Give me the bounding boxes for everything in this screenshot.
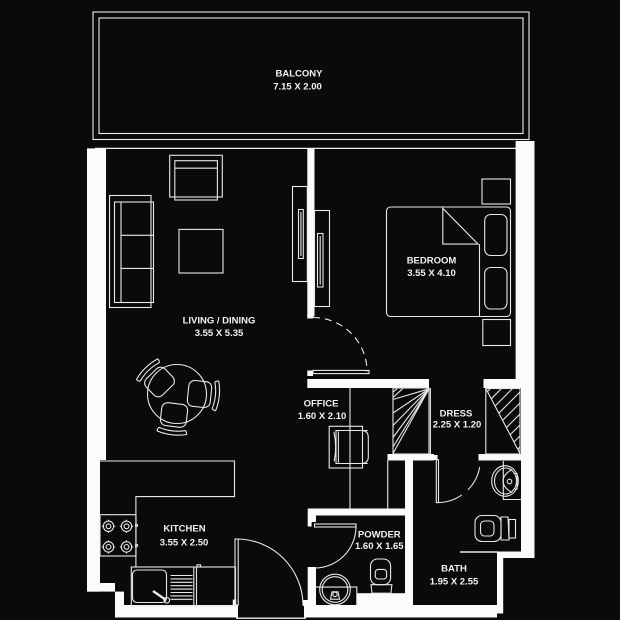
svg-text:3.55 X 2.50: 3.55 X 2.50: [160, 538, 209, 549]
svg-text:1.60 X 2.10: 1.60 X 2.10: [298, 411, 347, 422]
svg-text:BALCONY: BALCONY: [276, 69, 324, 80]
svg-text:2.25 X 1.20: 2.25 X 1.20: [433, 420, 482, 431]
svg-text:KITCHEN: KITCHEN: [163, 524, 205, 535]
svg-text:POWDER: POWDER: [358, 530, 401, 541]
svg-text:DRESS: DRESS: [440, 409, 473, 420]
svg-text:OFFICE: OFFICE: [304, 399, 339, 410]
svg-text:LIVING / DINING: LIVING / DINING: [183, 316, 256, 327]
svg-text:BEDROOM: BEDROOM: [407, 256, 457, 267]
svg-text:3.55 X 4.10: 3.55 X 4.10: [407, 268, 456, 279]
svg-text:7.15 X 2.00: 7.15 X 2.00: [273, 82, 322, 93]
svg-text:3.55 X 5.35: 3.55 X 5.35: [195, 328, 244, 339]
svg-text:1.60 X 1.65: 1.60 X 1.65: [355, 541, 404, 552]
svg-text:1.95 X 2.55: 1.95 X 2.55: [430, 577, 479, 588]
svg-text:BATH: BATH: [441, 564, 467, 575]
